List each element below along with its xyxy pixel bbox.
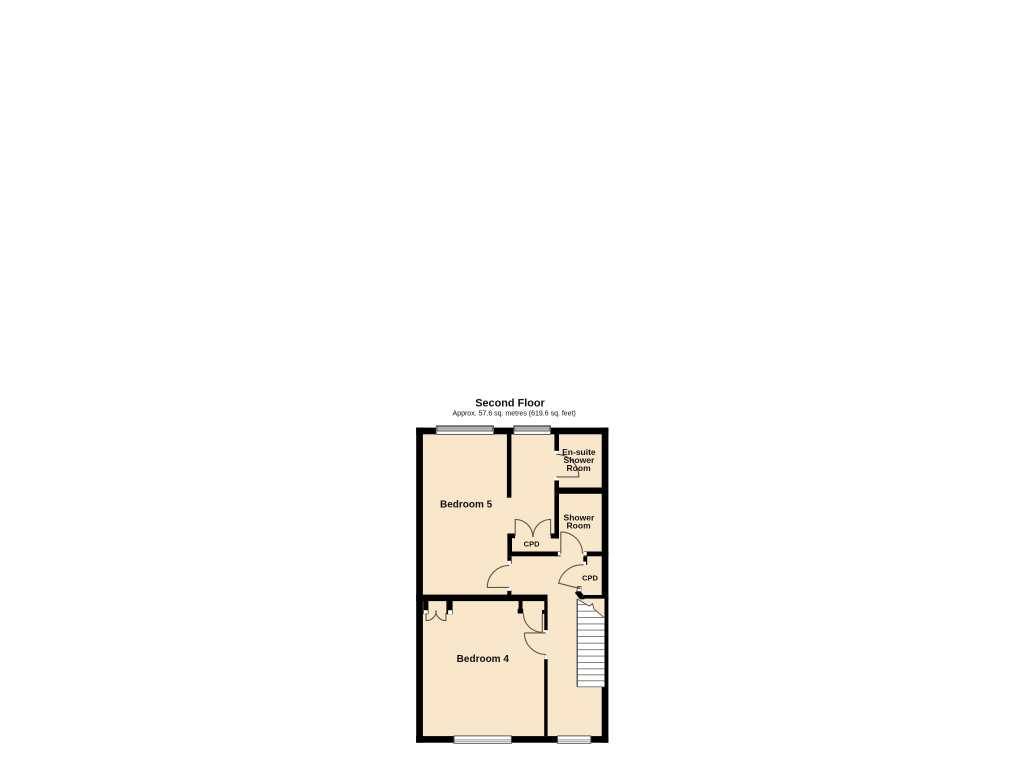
svg-text:Room: Room xyxy=(567,463,592,473)
svg-text:CPD: CPD xyxy=(582,574,598,583)
svg-text:Approx. 57.6 sq. metres (619.6: Approx. 57.6 sq. metres (619.6 sq. feet) xyxy=(453,411,576,418)
svg-text:Bedroom 4: Bedroom 4 xyxy=(457,654,510,665)
svg-text:CPD: CPD xyxy=(524,540,540,549)
svg-text:Room: Room xyxy=(567,521,592,531)
svg-text:Second Floor: Second Floor xyxy=(475,397,545,409)
svg-text:Bedroom 5: Bedroom 5 xyxy=(440,500,493,511)
